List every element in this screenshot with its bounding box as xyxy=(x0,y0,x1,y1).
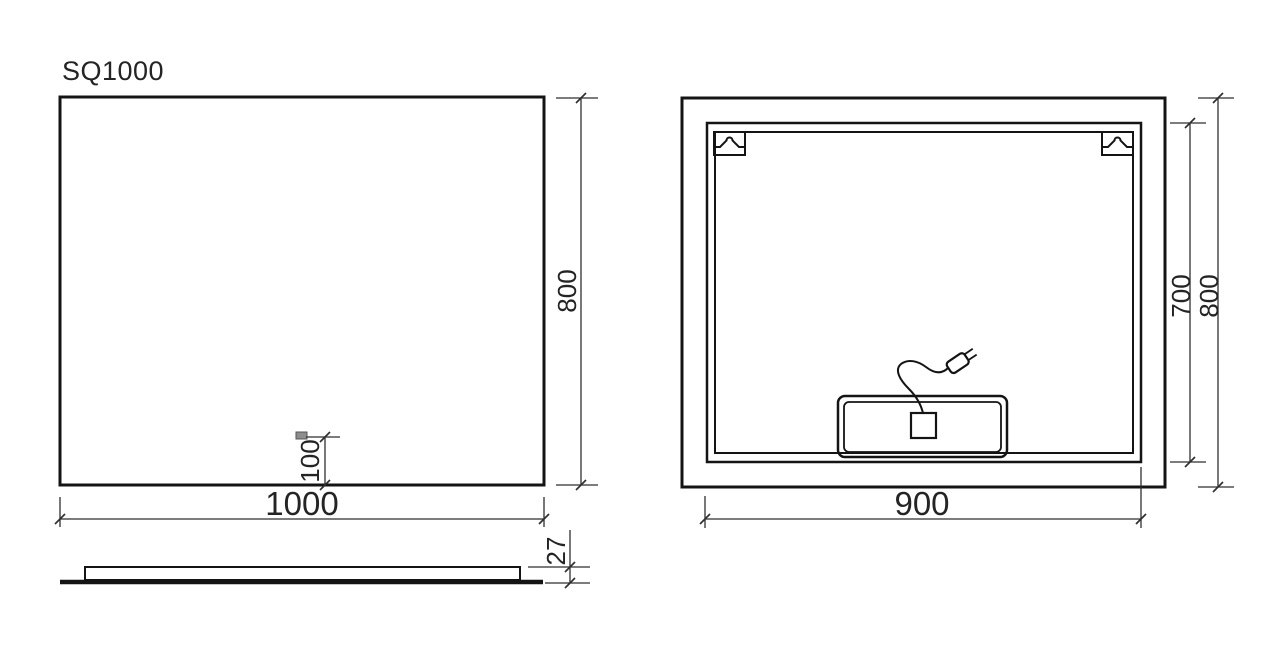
dim-label-back-frame-height: 700 xyxy=(1166,274,1196,317)
technical-drawing-canvas: SQ1000 1000 800 100 27 900 700 800 xyxy=(0,0,1280,648)
back-view-inner-frame xyxy=(715,132,1133,453)
front-view-outline xyxy=(60,97,544,485)
product-title: SQ1000 xyxy=(62,56,164,86)
power-plug-prong-top xyxy=(964,349,972,355)
back-view-outline xyxy=(682,98,1165,487)
side-view-frame xyxy=(85,567,520,580)
mounting-bracket-right xyxy=(1102,132,1133,155)
dim-label-back-frame-width: 900 xyxy=(894,485,949,522)
bracket-left-box xyxy=(714,132,745,155)
front-view xyxy=(60,97,544,485)
bracket-right-box xyxy=(1102,132,1133,155)
dim-label-sensor-offset: 100 xyxy=(295,439,325,482)
bracket-right-hook xyxy=(1102,138,1133,148)
junction-box-outer xyxy=(838,396,1007,457)
dim-label-side-thickness: 27 xyxy=(541,537,571,566)
back-view-frame xyxy=(707,123,1141,462)
side-view xyxy=(60,567,543,582)
power-plug xyxy=(945,346,978,374)
dim-label-front-height: 800 xyxy=(552,269,582,312)
touch-sensor xyxy=(296,432,307,439)
power-cable xyxy=(898,361,948,413)
power-plug-prong-bottom xyxy=(968,355,976,361)
dim-label-front-width: 1000 xyxy=(265,485,338,522)
driver-box xyxy=(911,413,936,438)
bracket-left-hook xyxy=(714,138,745,148)
junction-box xyxy=(838,396,1007,457)
dim-label-back-height: 800 xyxy=(1194,274,1224,317)
power-plug-body xyxy=(945,352,970,375)
back-view xyxy=(682,98,1165,487)
mounting-bracket-left xyxy=(714,132,745,155)
